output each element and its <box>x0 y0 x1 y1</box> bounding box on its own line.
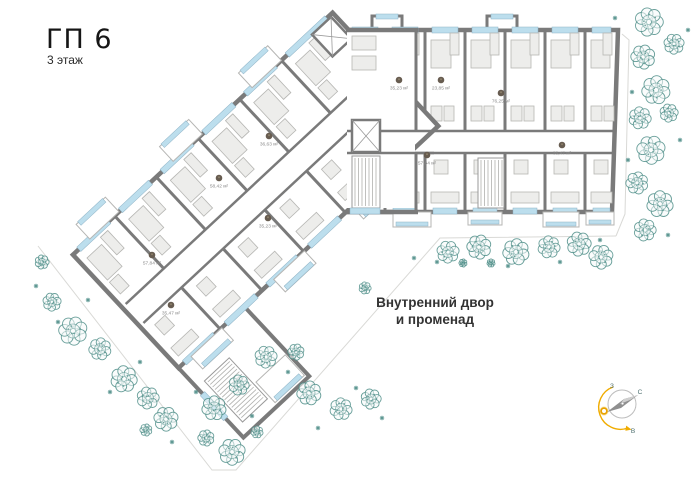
badge-highlight <box>561 143 563 145</box>
furniture <box>352 36 376 50</box>
tree-dot <box>215 409 217 411</box>
tree-dot <box>640 57 642 59</box>
tree-dot <box>655 17 657 19</box>
tree-dot <box>544 248 546 250</box>
tree-dot <box>123 385 125 387</box>
tree-dot <box>261 361 263 363</box>
tree-dot <box>545 244 547 246</box>
tree-dot <box>660 89 662 91</box>
tree-foliage <box>48 298 57 307</box>
furniture <box>603 33 612 55</box>
tree-dot <box>577 245 579 247</box>
shrub-star-icon <box>56 320 60 324</box>
window <box>350 208 380 214</box>
tree-dot <box>362 285 364 287</box>
furniture <box>511 192 539 203</box>
tree-dot <box>235 457 237 459</box>
tree-dot <box>634 179 636 181</box>
tree-dot <box>264 355 266 357</box>
tree-dot <box>79 334 81 336</box>
tree-dot <box>309 390 311 392</box>
tree-dot <box>121 378 123 380</box>
tree-dot <box>238 452 240 454</box>
tree-dot <box>39 259 41 261</box>
furniture <box>514 160 528 174</box>
tree-dot <box>517 250 519 252</box>
tree-dot <box>310 391 312 393</box>
tree <box>251 426 263 438</box>
window <box>472 27 498 33</box>
shrub-star-icon <box>412 256 416 260</box>
tree-foliage <box>336 404 347 415</box>
tree-dot <box>220 409 222 411</box>
tree-dot <box>376 398 378 400</box>
floor-plan-canvas: 35,23 м²23,85 м²76,25 м²57,84 м²35,47 м²… <box>0 0 699 500</box>
tree-dot <box>583 248 585 250</box>
tree-dot <box>73 333 75 335</box>
tree <box>664 34 684 54</box>
tree-foliage <box>234 380 244 390</box>
tree-dot <box>292 354 294 356</box>
tree-dot <box>653 149 655 151</box>
tree-dot <box>662 210 664 212</box>
tree <box>140 424 152 436</box>
tree-dot <box>42 257 44 259</box>
shrub-star-icon <box>380 416 384 420</box>
tree-dot <box>464 263 466 265</box>
shrub-star-icon <box>506 264 510 268</box>
furniture <box>524 106 534 121</box>
window <box>432 27 458 33</box>
tree-foliage <box>640 225 651 236</box>
tree-dot <box>231 454 233 456</box>
apartment-area-label: 35,47 м² <box>162 311 181 317</box>
tree-dot <box>297 353 299 355</box>
tree-dot <box>641 121 643 123</box>
furniture <box>490 33 499 55</box>
tree-dot <box>208 436 210 438</box>
tree-dot <box>646 235 648 237</box>
apartment-area-label: 23,85 м² <box>432 86 451 92</box>
tree-dot <box>258 431 260 433</box>
tree-dot <box>339 412 341 414</box>
tree-dot <box>585 243 587 245</box>
tree-dot <box>652 151 654 153</box>
courtyard-label-line2: и променад <box>396 312 475 327</box>
furniture <box>551 40 571 68</box>
apartment-area-label: 35,23 м² <box>259 224 278 230</box>
floor-plan-drawing: 35,23 м²23,85 м²76,25 м²57,84 м²35,47 м²… <box>0 0 699 500</box>
badge-highlight <box>500 91 502 93</box>
tree-dot <box>255 434 257 436</box>
compass-letter-west: З <box>610 383 614 390</box>
window <box>491 14 513 19</box>
shrub-star-icon <box>34 284 38 288</box>
tree-dot <box>578 239 580 241</box>
tree-dot <box>269 356 271 358</box>
tree-dot <box>642 183 644 185</box>
tree-dot <box>122 376 124 378</box>
furniture <box>471 40 491 68</box>
tree-dot <box>444 256 446 258</box>
tree-dot <box>79 328 81 330</box>
tree-dot <box>307 396 309 398</box>
tree-dot <box>159 415 161 417</box>
furniture <box>450 33 459 55</box>
tree-dot <box>490 264 492 266</box>
tree-dot <box>342 407 344 409</box>
window <box>589 220 611 224</box>
tree-dot <box>678 45 680 47</box>
badge-highlight <box>398 78 400 80</box>
tree-foliage <box>510 246 523 259</box>
furniture <box>591 106 602 121</box>
tree-dot <box>670 42 672 44</box>
tree-foliage <box>202 434 210 442</box>
tree-dot <box>451 251 453 253</box>
tree-dot <box>238 386 240 388</box>
tree-dot <box>149 401 151 403</box>
tree-foliage <box>665 109 674 118</box>
tree-dot <box>651 21 653 23</box>
tree-dot <box>104 352 106 354</box>
tree-dot <box>638 116 640 118</box>
furniture <box>352 56 376 70</box>
tree-dot <box>491 262 493 264</box>
tree-foliage <box>644 143 658 157</box>
tree-dot <box>71 333 73 335</box>
furniture <box>444 106 454 121</box>
tree-dot <box>342 409 344 411</box>
tree-dot <box>56 299 58 301</box>
tree-dot <box>649 142 651 144</box>
tree-dot <box>164 412 166 414</box>
shrub-star-icon <box>86 298 90 302</box>
tree-dot <box>601 252 603 254</box>
tree-dot <box>49 303 51 305</box>
tree-dot <box>636 184 638 186</box>
tree-dot <box>71 325 73 327</box>
tree-dot <box>229 453 231 455</box>
tree-dot <box>650 95 652 97</box>
badge-highlight <box>440 78 442 80</box>
plan-subtitle: 3 этаж <box>47 53 83 67</box>
tree-dot <box>98 350 100 352</box>
tree-dot <box>167 418 169 420</box>
tree-dot <box>666 205 668 207</box>
tree-dot <box>667 115 669 117</box>
furniture <box>530 33 539 55</box>
tree-dot <box>478 251 480 253</box>
window <box>513 208 537 214</box>
tree-dot <box>599 263 601 265</box>
badge-highlight <box>267 216 269 218</box>
tree <box>459 259 467 267</box>
tree-dot <box>39 263 41 265</box>
badge-highlight <box>268 134 270 136</box>
tree-dot <box>365 286 367 288</box>
tree-dot <box>462 262 464 264</box>
plan-title: ГП 6 <box>46 24 113 55</box>
tree-dot <box>673 45 675 47</box>
tree-dot <box>99 344 101 346</box>
compass-pivot <box>621 402 624 405</box>
window <box>376 14 398 19</box>
tree-dot <box>263 357 265 359</box>
tree-dot <box>343 403 345 405</box>
tree-dot <box>638 184 640 186</box>
tree-dot <box>642 230 644 232</box>
stairs <box>478 158 504 208</box>
badge-highlight <box>151 253 153 255</box>
tree-dot <box>367 399 369 401</box>
tree-dot <box>653 88 655 90</box>
tree-dot <box>633 116 635 118</box>
badge-highlight <box>426 153 428 155</box>
tree-dot <box>232 447 234 449</box>
tree-dot <box>256 430 258 432</box>
tree-dot <box>478 244 480 246</box>
tree-dot <box>649 14 651 16</box>
tree-dot <box>267 353 269 355</box>
tree-dot <box>674 45 676 47</box>
tree-dot <box>645 53 647 55</box>
tree-dot <box>211 404 213 406</box>
furniture <box>591 192 612 203</box>
tree-dot <box>460 263 462 265</box>
tree-dot <box>148 427 150 429</box>
furniture <box>431 192 459 203</box>
apartment-area-label: 57,84 м² <box>143 261 162 267</box>
furniture <box>551 192 579 203</box>
tree-dot <box>598 256 600 258</box>
tree-dot <box>206 434 208 436</box>
tree-dot <box>266 362 268 364</box>
tree-dot <box>228 448 230 450</box>
tree-dot <box>551 241 553 243</box>
tree-dot <box>209 407 211 409</box>
tree-dot <box>481 249 483 251</box>
tree-foliage <box>143 393 154 404</box>
tree-dot <box>670 112 672 114</box>
tree-dot <box>43 261 45 263</box>
furniture <box>594 160 608 174</box>
tree-dot <box>142 400 144 402</box>
apartment-area-label: 57,84 м² <box>418 161 437 167</box>
tree-dot <box>240 389 242 391</box>
tree-dot <box>145 426 147 428</box>
tree-foliage <box>637 51 649 63</box>
shrub-star-icon <box>435 260 439 264</box>
tree-dot <box>655 143 657 145</box>
tree-dot <box>219 403 221 405</box>
tree-dot <box>142 395 144 397</box>
tree-dot <box>461 264 463 266</box>
tree-dot <box>450 254 452 256</box>
tree-dot <box>664 111 666 113</box>
tree <box>487 259 495 267</box>
tree-dot <box>658 85 660 87</box>
tree-dot <box>645 150 647 152</box>
tree-dot <box>237 381 239 383</box>
tree-dot <box>311 396 313 398</box>
shrub-star-icon <box>170 440 174 444</box>
furniture <box>554 160 568 174</box>
tree-dot <box>579 245 581 247</box>
window <box>471 220 499 224</box>
tree-dot <box>472 246 474 248</box>
shrub-star-icon <box>138 360 142 364</box>
tree-foliage <box>303 387 315 399</box>
tree-dot <box>489 261 491 263</box>
tree-dot <box>253 432 255 434</box>
tree-dot <box>661 199 663 201</box>
tree-dot <box>163 422 165 424</box>
tree-dot <box>151 398 153 400</box>
window <box>546 222 576 226</box>
tree-dot <box>480 245 482 247</box>
tree-dot <box>364 289 366 291</box>
window <box>512 27 538 33</box>
tree-dot <box>117 382 119 384</box>
apartment-area-label: 36,63 м² <box>260 142 279 148</box>
tree-dot <box>367 396 369 398</box>
tree-dot <box>48 300 50 302</box>
shrub-star-icon <box>108 390 112 394</box>
furniture <box>570 33 579 55</box>
window <box>396 222 428 226</box>
tree-dot <box>361 287 363 289</box>
tree-dot <box>648 228 650 230</box>
furniture <box>604 106 614 121</box>
tree-dot <box>641 178 643 180</box>
tree-dot <box>474 241 476 243</box>
tree-dot <box>127 375 129 377</box>
tree-dot <box>657 204 659 206</box>
tree-dot <box>52 296 54 298</box>
apartment-area-label: 35,23 м² <box>390 86 409 92</box>
sun-icon <box>601 408 607 414</box>
tree-dot <box>97 348 99 350</box>
tree-dot <box>667 108 669 110</box>
shrub-star-icon <box>286 370 290 374</box>
tree-foliage <box>66 324 80 338</box>
tree-dot <box>518 252 520 254</box>
tree-dot <box>514 256 516 258</box>
tree-dot <box>441 251 443 253</box>
tree-dot <box>148 395 150 397</box>
courtyard-label-line1: Внутренний двор <box>376 295 494 310</box>
apartment-area-label: 76,25 м² <box>492 99 511 105</box>
tree-dot <box>670 115 672 117</box>
compass-letter-north: С <box>638 389 643 396</box>
tree-dot <box>642 228 644 230</box>
badge-highlight <box>218 176 220 178</box>
window <box>433 208 457 214</box>
window <box>592 27 611 33</box>
tree-dot <box>641 52 643 54</box>
tree-dot <box>641 234 643 236</box>
tree-dot <box>295 350 297 352</box>
tree-dot <box>554 245 556 247</box>
tree-dot <box>146 396 148 398</box>
tree-dot <box>549 248 551 250</box>
tree-dot <box>366 289 368 291</box>
tree-dot <box>657 199 659 201</box>
tree-dot <box>518 245 520 247</box>
tree-dot <box>128 379 130 381</box>
tree-foliage <box>544 242 555 253</box>
window <box>552 27 578 33</box>
tree-dot <box>144 431 146 433</box>
apartment-area-label: 35,47 м² <box>553 151 572 157</box>
badge-highlight <box>170 303 172 305</box>
tree-dot <box>575 240 577 242</box>
tree-dot <box>604 254 606 256</box>
tree-dot <box>68 328 70 330</box>
tree-dot <box>240 381 242 383</box>
tree-dot <box>599 258 601 260</box>
tree-dot <box>656 97 658 99</box>
tree-dot <box>650 23 652 25</box>
tree-dot <box>302 391 304 393</box>
tree-dot <box>511 253 513 255</box>
tree-dot <box>167 422 169 424</box>
tree-dot <box>640 115 642 117</box>
shrub-star-icon <box>354 386 358 390</box>
tree-dot <box>370 400 372 402</box>
furniture <box>431 40 451 68</box>
tree-dot <box>374 394 376 396</box>
tree-dot <box>644 25 646 27</box>
tree-dot <box>646 226 648 228</box>
furniture <box>564 106 574 121</box>
tree-dot <box>146 430 148 432</box>
tree-dot <box>604 262 606 264</box>
tree-dot <box>336 409 338 411</box>
shrub-star-icon <box>316 426 320 430</box>
tree-dot <box>678 41 680 43</box>
tree-dot <box>634 121 636 123</box>
tree-dot <box>338 403 340 405</box>
tree-dot <box>143 429 145 431</box>
tree-dot <box>672 40 674 42</box>
tree <box>198 430 214 446</box>
tree-dot <box>204 437 206 439</box>
tree-dot <box>99 354 101 356</box>
tree <box>35 255 49 269</box>
tree-dot <box>643 63 645 65</box>
apartment-area-label: 58,42 м² <box>210 184 229 190</box>
tree-dot <box>204 441 206 443</box>
tree-dot <box>641 58 643 60</box>
tree-foliage <box>654 198 667 211</box>
tree-dot <box>237 385 239 387</box>
tree-dot <box>643 118 645 120</box>
furniture <box>484 106 494 121</box>
tree-foliage <box>160 413 172 425</box>
tree-foliage <box>669 39 679 49</box>
tree-dot <box>446 250 448 252</box>
tree-dot <box>632 182 634 184</box>
tree <box>359 282 371 294</box>
furniture <box>551 106 562 121</box>
tree-dot <box>550 247 552 249</box>
tree-dot <box>52 303 54 305</box>
tree-dot <box>258 432 260 434</box>
tree-dot <box>512 245 514 247</box>
tree-dot <box>488 263 490 265</box>
